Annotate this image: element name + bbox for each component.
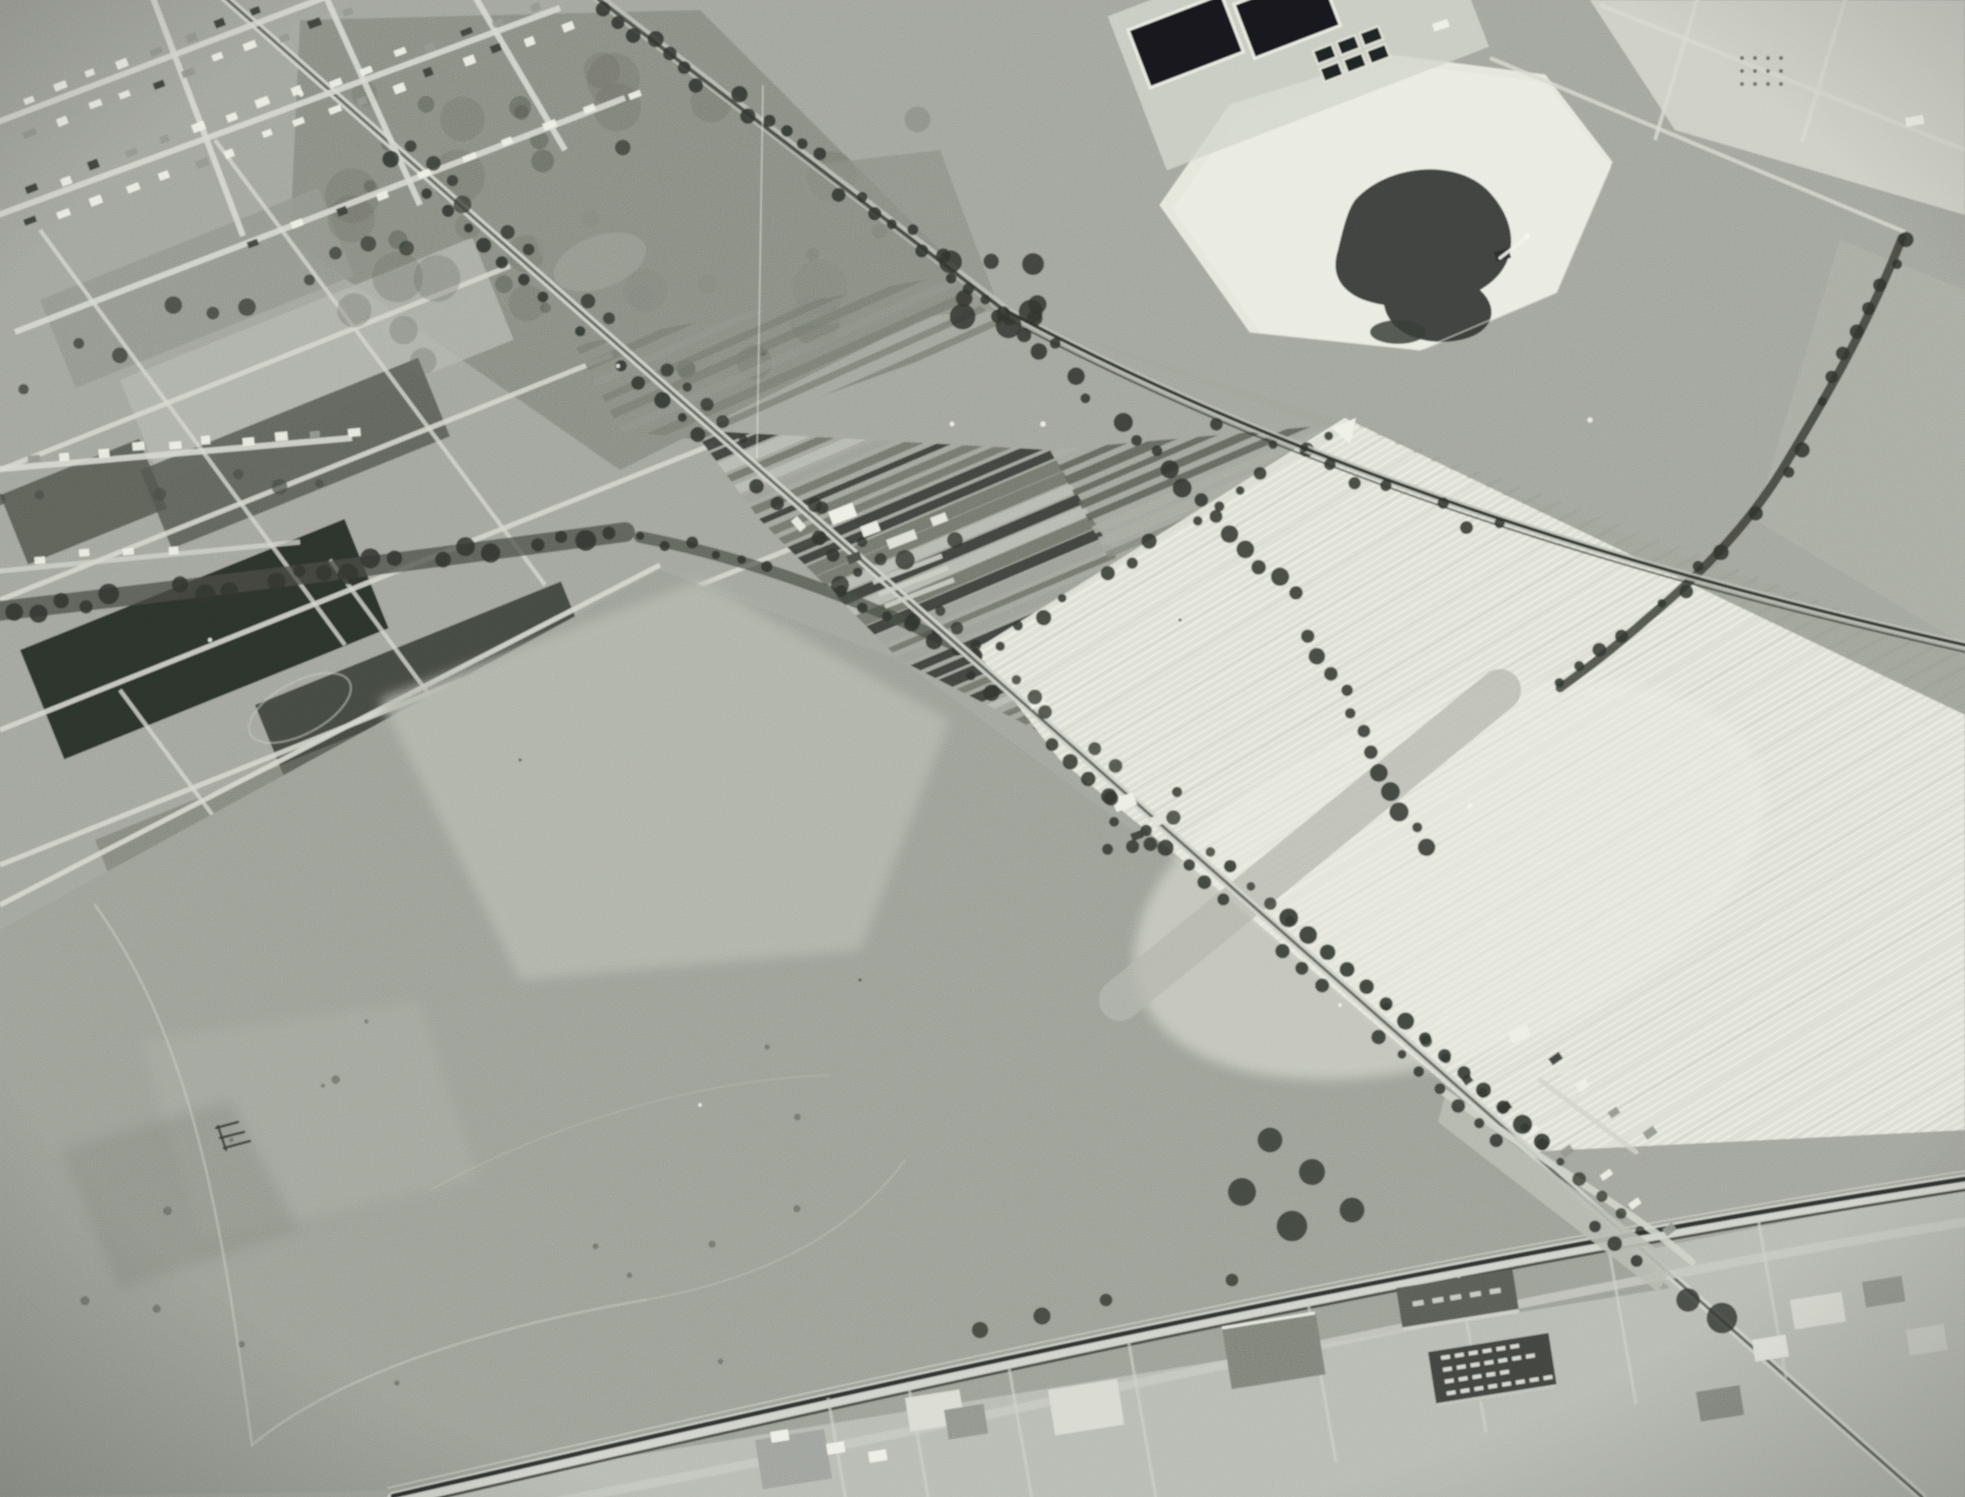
vignette bbox=[0, 0, 1965, 1497]
aerial-photograph bbox=[0, 0, 1965, 1497]
aerial-photo-canvas bbox=[0, 0, 1965, 1497]
